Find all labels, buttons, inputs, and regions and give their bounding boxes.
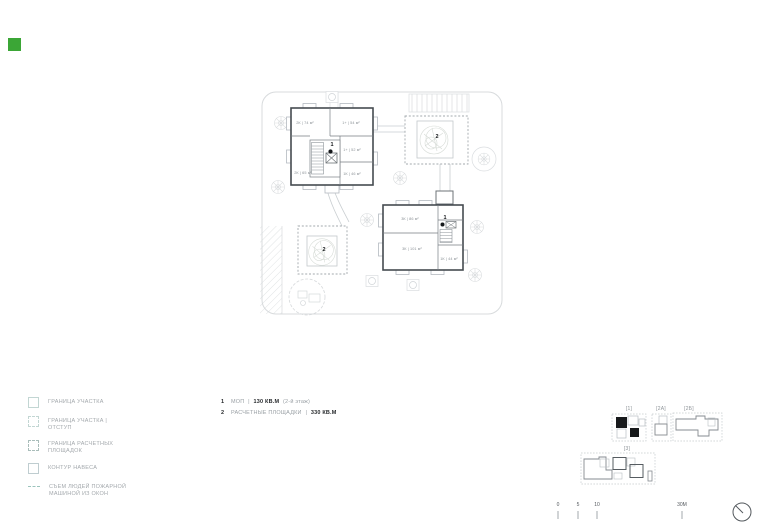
room-label: 1К | 44 м² bbox=[440, 257, 458, 261]
scale-bar: 0 5 10 30М bbox=[557, 502, 687, 519]
scale-tick-label: 10 bbox=[594, 502, 600, 508]
room-label: 1+ | 52 м² bbox=[343, 148, 361, 152]
note-number: 1 bbox=[221, 399, 224, 405]
keyplan-2a: [2А] bbox=[652, 406, 671, 441]
playground-bottom: 2 bbox=[298, 226, 347, 274]
note-label: РАСЧЕТНЫЕ ПЛОЩАДКИ bbox=[231, 410, 302, 416]
keyplan-3-label: [3] bbox=[624, 446, 631, 452]
keyplan-1-label: [1] bbox=[626, 406, 633, 412]
keyplan-2b: [2Б] bbox=[673, 406, 722, 441]
building-b-marker-dot bbox=[441, 223, 445, 227]
note-value: 330 КВ.М bbox=[311, 410, 337, 416]
legend-label: КОНТУР НАВЕСА bbox=[48, 463, 97, 472]
keyplan-1: [1] bbox=[612, 406, 646, 441]
playground-top-marker: 2 bbox=[435, 134, 438, 140]
parking-hatch bbox=[409, 94, 469, 112]
room-label: 1К | 46 м² bbox=[343, 172, 361, 176]
drawing-sheet: 2 2 bbox=[0, 0, 780, 529]
legend-item-canopy: КОНТУР НАВЕСА bbox=[28, 463, 131, 474]
playground-top: 2 bbox=[405, 116, 468, 164]
solid-square-symbol bbox=[28, 463, 39, 474]
note-number: 2 bbox=[221, 410, 224, 416]
note-separator: | bbox=[305, 410, 307, 416]
scale-tick-label: 5 bbox=[577, 502, 580, 508]
building-b: 1 3К | 86 м² 3К | 101 м² 1К | 44 м² bbox=[379, 191, 468, 275]
room-label: 1+ | 54 м² bbox=[342, 121, 360, 125]
scale-tick-label: 30М bbox=[677, 502, 687, 508]
legend-item-setback: ГРАНИЦА УЧАСТКА | ОТСТУП bbox=[28, 416, 131, 432]
note-separator: | bbox=[248, 399, 250, 405]
room-label: 2К | 74 м² bbox=[296, 121, 314, 125]
note-mop: 1 МОП | 130 КВ.М (2-й этаж) bbox=[221, 399, 337, 405]
keyplan-3: [3] bbox=[581, 446, 655, 484]
dashed-square-symbol bbox=[28, 416, 39, 427]
building-a-marker-dot bbox=[328, 149, 332, 153]
legend-item-play-areas: ГРАНИЦА РАСЧЕТНЫХ ПЛОЩАДОК bbox=[28, 440, 131, 456]
note-value: 130 КВ.М bbox=[254, 399, 280, 405]
legend-item-site-boundary: ГРАНИЦА УЧАСТКА bbox=[28, 397, 131, 408]
fire-access-hatch bbox=[260, 226, 282, 314]
keyplan-2a-label: [2А] bbox=[656, 406, 666, 412]
legend: ГРАНИЦА УЧАСТКА ГРАНИЦА УЧАСТКА | ОТСТУП… bbox=[28, 397, 131, 506]
building-a-stair-core bbox=[310, 140, 340, 177]
keyplan-2b-label: [2Б] bbox=[684, 406, 694, 412]
solid-square-symbol bbox=[28, 397, 39, 408]
room-label: 2К | 65 м² bbox=[294, 171, 312, 175]
building-a: 1 2К | 74 м² 1+ | 54 м² 1+ | 52 м² 2К | … bbox=[287, 104, 378, 194]
building-b-porch bbox=[436, 191, 453, 204]
note-label: МОП bbox=[231, 399, 244, 405]
note-play-areas: 2 РАСЧЕТНЫЕ ПЛОЩАДКИ | 330 КВ.М bbox=[221, 410, 337, 416]
room-label: 3К | 101 м² bbox=[402, 247, 422, 251]
legend-label: ГРАНИЦА УЧАСТКА bbox=[48, 397, 104, 406]
dashed-square-symbol bbox=[28, 440, 39, 451]
building-a-marker: 1 bbox=[330, 142, 333, 148]
dashed-line-symbol bbox=[28, 486, 40, 487]
notes: 1 МОП | 130 КВ.М (2-й этаж) 2 РАСЧЕТНЫЕ … bbox=[221, 399, 337, 420]
scale-tick-label: 0 bbox=[557, 502, 560, 508]
legend-label: ГРАНИЦА УЧАСТКА | ОТСТУП bbox=[48, 416, 130, 432]
legend-item-fire-rescue: СЪЕМ ЛЮДЕЙ ПОЖАРНОЙ МАШИНОЙ ИЗ ОКОН bbox=[28, 482, 131, 498]
legend-label: СЪЕМ ЛЮДЕЙ ПОЖАРНОЙ МАШИНОЙ ИЗ ОКОН bbox=[49, 482, 131, 498]
room-label: 3К | 86 м² bbox=[401, 217, 419, 221]
playground-bottom-marker: 2 bbox=[322, 247, 325, 253]
note-suffix: (2-й этаж) bbox=[283, 399, 310, 405]
legend-label: ГРАНИЦА РАСЧЕТНЫХ ПЛОЩАДОК bbox=[48, 440, 130, 456]
building-b-marker: 1 bbox=[443, 215, 446, 221]
north-arrow-icon bbox=[733, 503, 751, 521]
